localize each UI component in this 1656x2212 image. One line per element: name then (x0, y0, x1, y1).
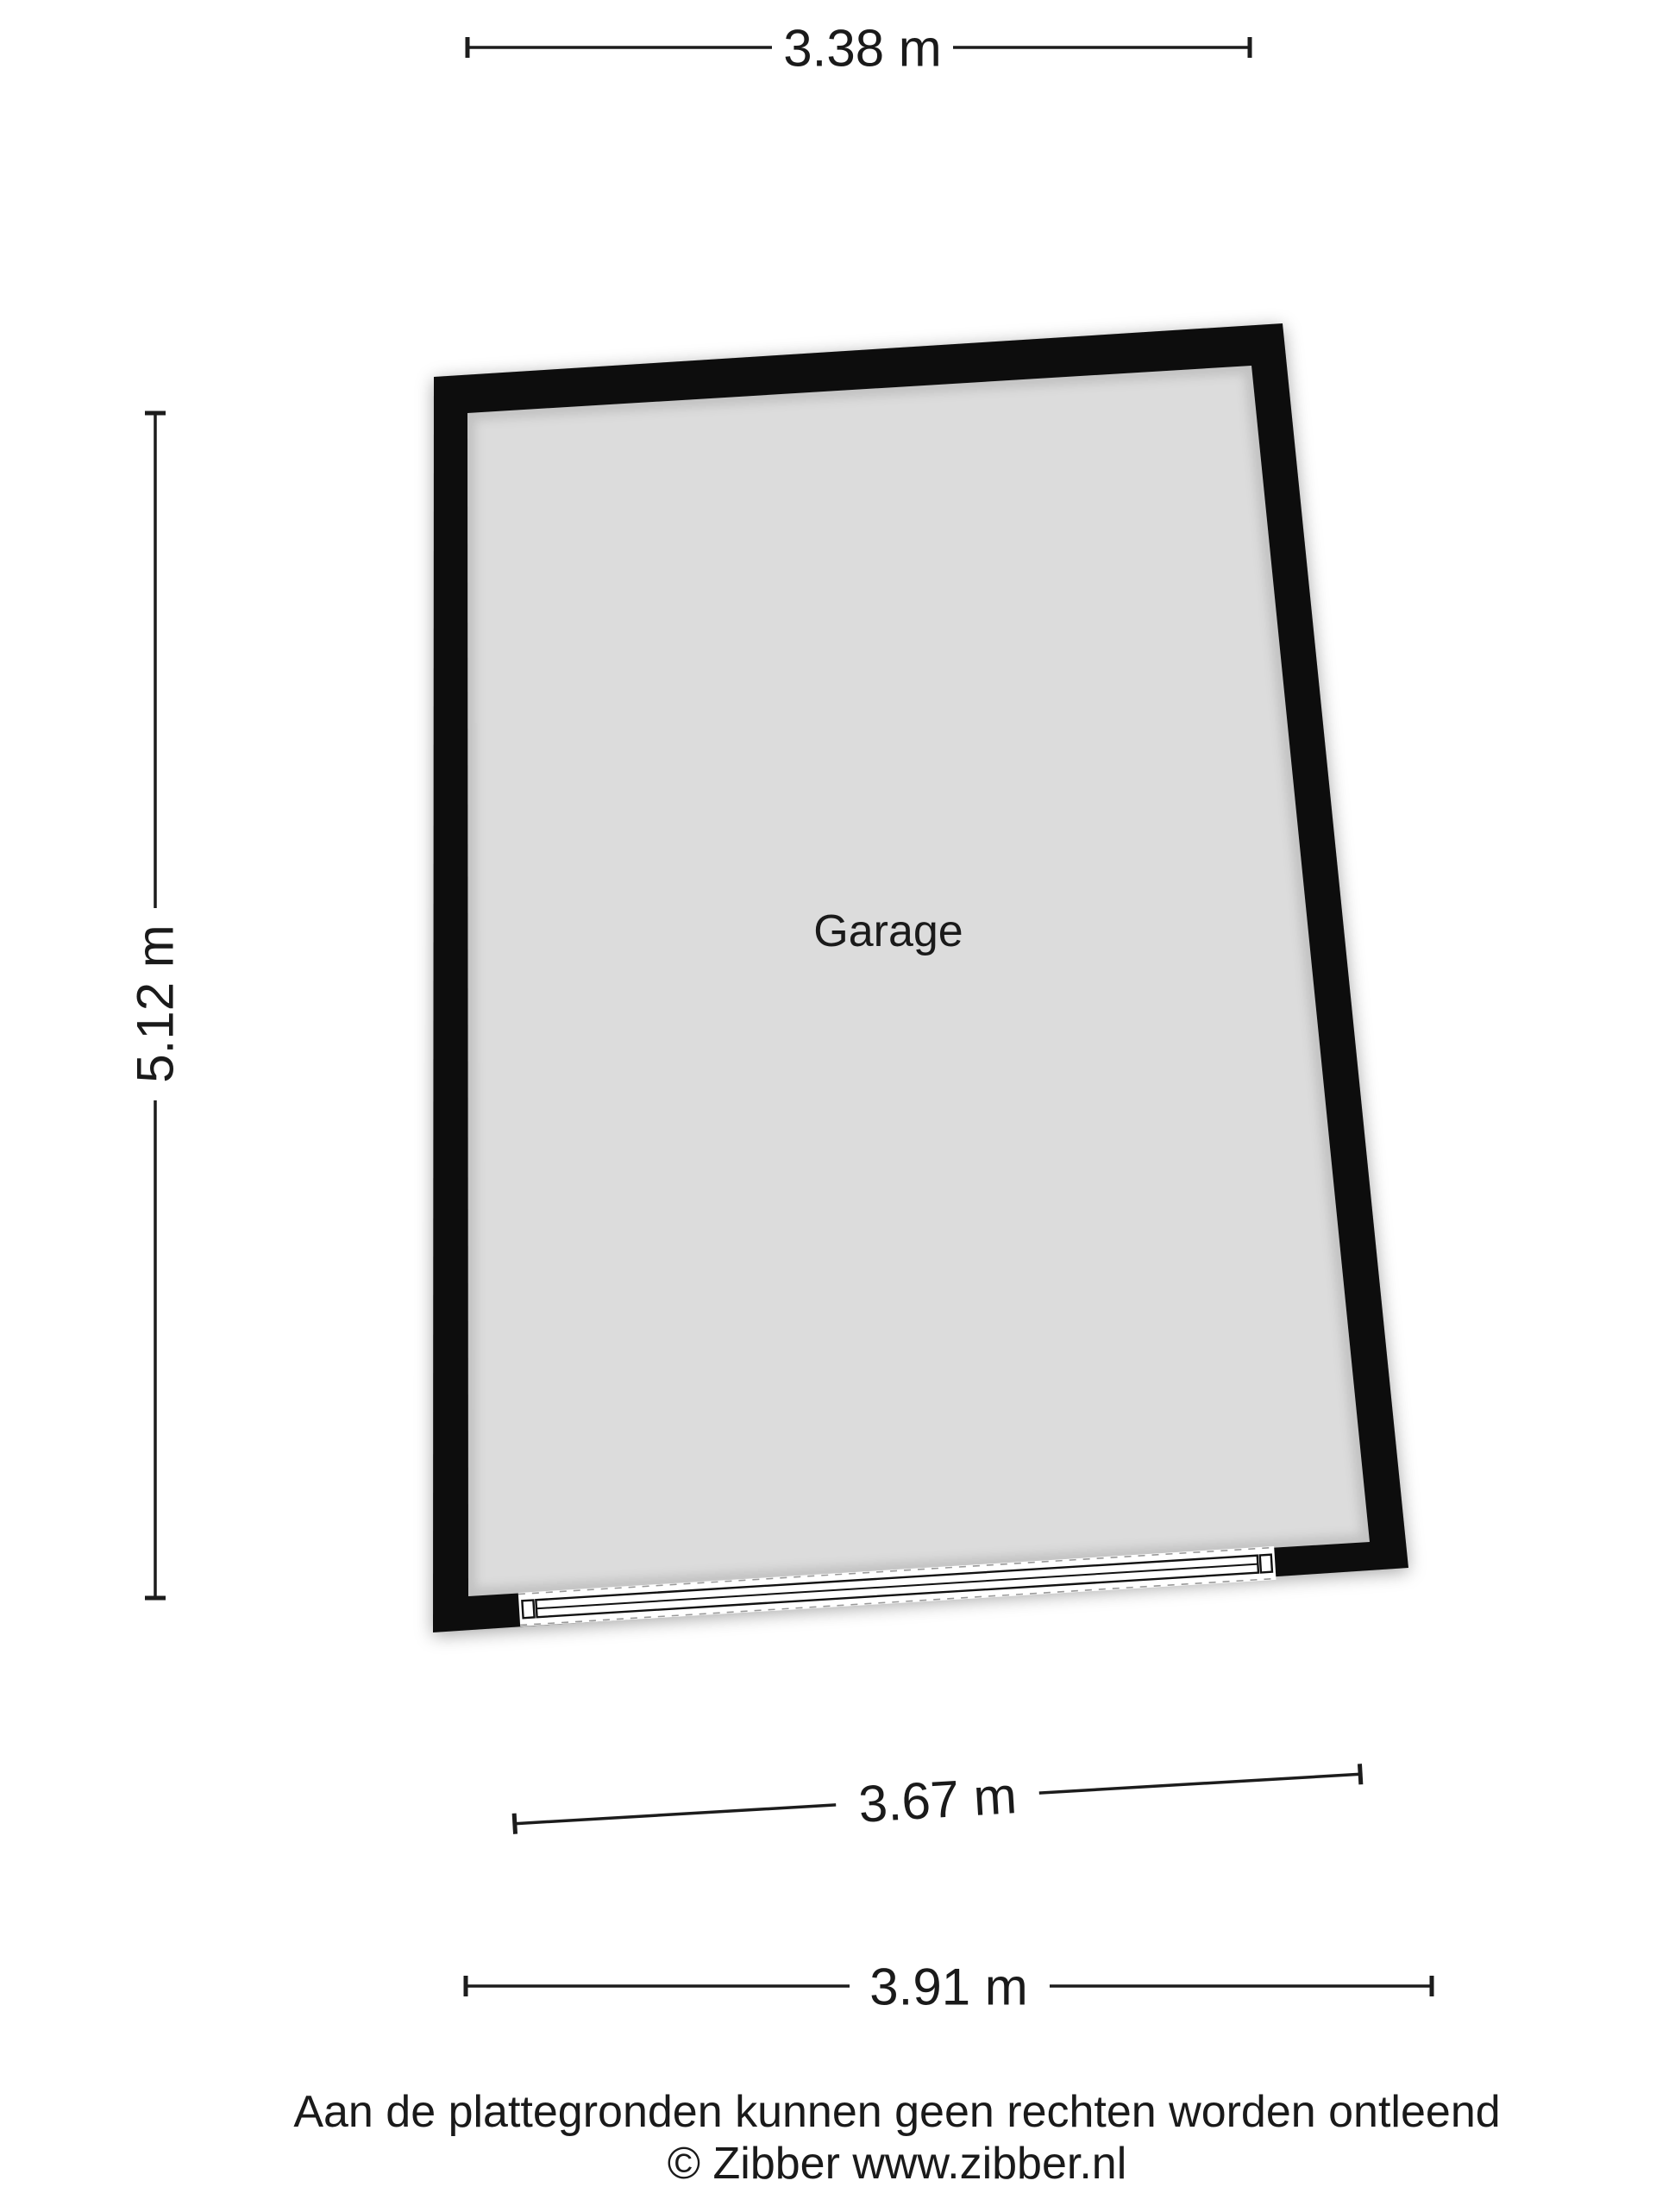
dim-inner-bottom-line-left (515, 1805, 836, 1824)
dim-inner-bottom-line-right (1039, 1774, 1360, 1793)
footer-disclaimer: Aan de plattegronden kunnen geen rechten… (293, 2087, 1500, 2137)
dim-top-label: 3.38 m (783, 20, 941, 78)
floorplan-canvas: Garage 3.38 m 5.12 m 3.67 m (0, 0, 1656, 2208)
garage-door-jamb-right (1260, 1555, 1272, 1573)
dim-outer-bottom-label: 3.91 m (869, 1958, 1027, 2016)
dim-inner-bottom: 3.67 m (513, 1746, 1362, 1853)
dim-left-label: 5.12 m (127, 924, 185, 1082)
dim-top: 3.38 m (467, 20, 1250, 78)
dim-outer-bottom: 3.91 m (466, 1958, 1432, 2016)
garage-room: Garage (433, 323, 1408, 1632)
footer-copyright: © Zibber www.zibber.nl (668, 2139, 1127, 2189)
garage-door-jamb-left (522, 1600, 534, 1618)
room-label: Garage (813, 906, 963, 956)
dim-left: 5.12 m (127, 413, 185, 1598)
garage-floor (467, 366, 1370, 1596)
dim-inner-bottom-label: 3.67 m (857, 1766, 1019, 1833)
dim-inner-bottom-tick-right (1359, 1764, 1360, 1784)
footer: Aan de plattegronden kunnen geen rechten… (293, 2087, 1500, 2189)
floorplan-page: Garage 3.38 m 5.12 m 3.67 m (0, 0, 1656, 2212)
dim-inner-bottom-tick-left (514, 1814, 515, 1834)
